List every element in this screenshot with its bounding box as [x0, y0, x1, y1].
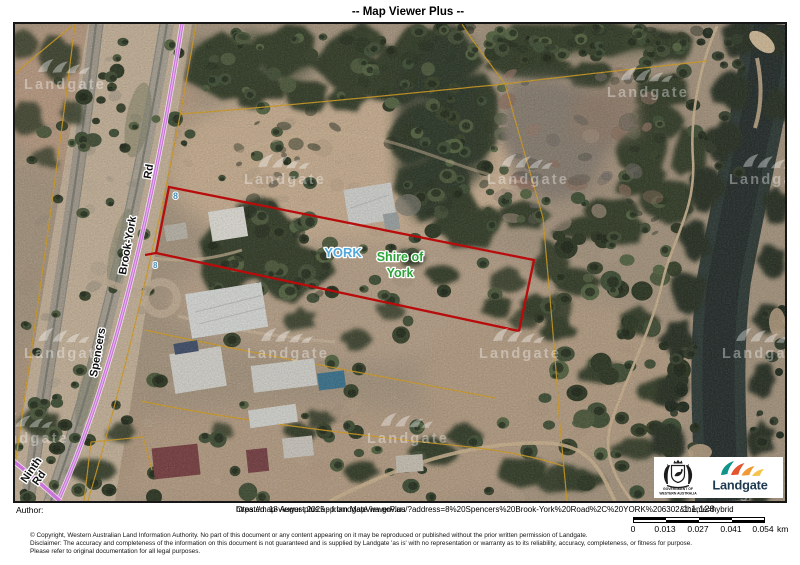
svg-text:GOVERNMENT OF: GOVERNMENT OF	[663, 487, 693, 491]
svg-text:York: York	[387, 266, 414, 280]
svg-text:8: 8	[153, 261, 158, 270]
svg-text:Landgate: Landgate	[722, 346, 785, 362]
svg-text:Shire of: Shire of	[377, 250, 424, 264]
svg-text:Landgate: Landgate	[487, 172, 569, 188]
svg-text:Landgate: Landgate	[607, 85, 689, 101]
svg-text:Landgate: Landgate	[15, 431, 69, 447]
svg-text:Rd: Rd	[142, 163, 156, 180]
svg-text:Landgate: Landgate	[24, 77, 106, 93]
svg-text:Landgate: Landgate	[367, 431, 449, 447]
svg-text:YORK: YORK	[324, 245, 362, 260]
svg-text:WESTERN AUSTRALIA: WESTERN AUSTRALIA	[659, 492, 697, 496]
svg-text:Landgate: Landgate	[729, 172, 785, 188]
svg-text:Landgate: Landgate	[244, 172, 326, 188]
svg-text:Landgate: Landgate	[479, 346, 561, 362]
svg-text:Landgate: Landgate	[712, 478, 767, 493]
svg-text:Landgate: Landgate	[247, 346, 329, 362]
svg-text:8: 8	[173, 191, 178, 201]
